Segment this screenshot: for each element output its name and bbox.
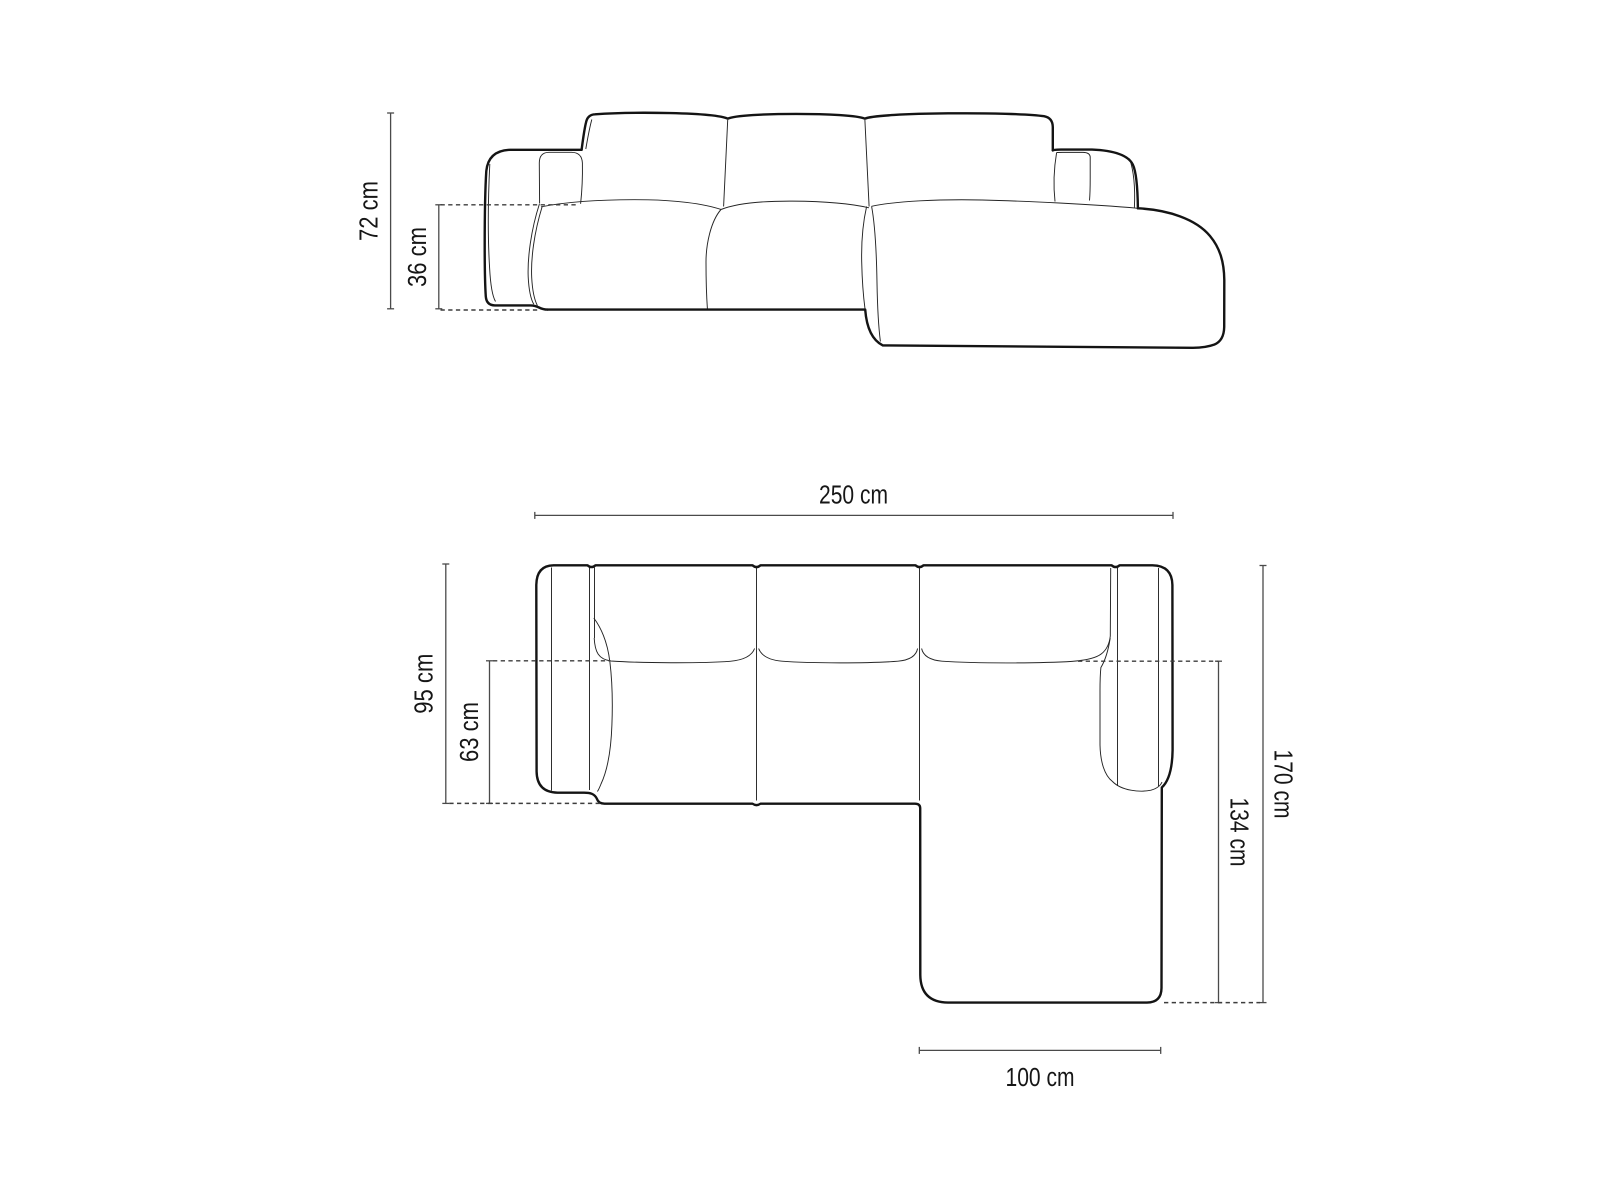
svg-text:170 cm: 170 cm [1269,750,1297,819]
svg-text:100 cm: 100 cm [1006,1064,1075,1092]
svg-text:250 cm: 250 cm [819,481,888,509]
svg-text:36 cm: 36 cm [404,227,432,287]
svg-text:134 cm: 134 cm [1225,798,1253,867]
svg-text:72 cm: 72 cm [356,181,384,241]
svg-text:95 cm: 95 cm [411,654,439,714]
svg-text:63 cm: 63 cm [456,702,484,762]
